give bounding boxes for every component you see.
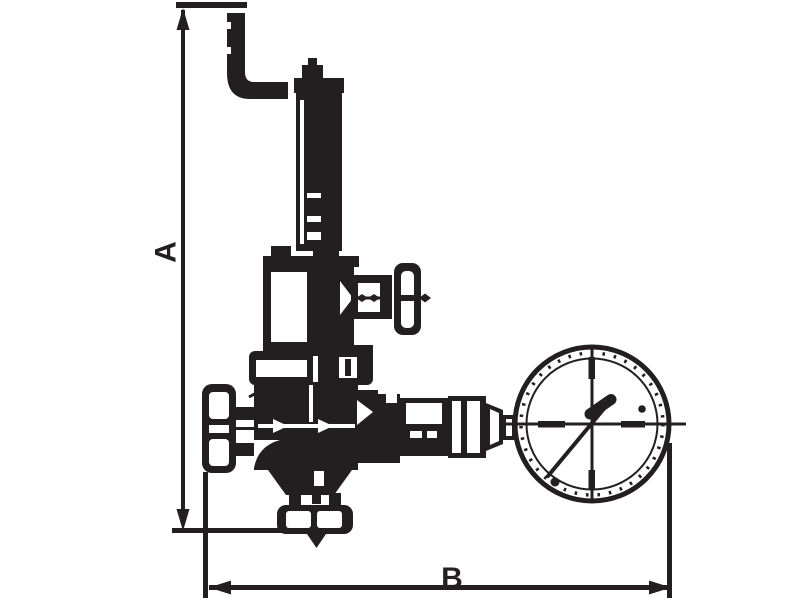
- pipe-section-mark: [427, 431, 437, 438]
- handwheel-hub-slot: [209, 425, 229, 433]
- dim-a-top-extension-line: [176, 2, 247, 8]
- housing-cap: [294, 78, 344, 93]
- dim-b-left-extension-line: [203, 472, 208, 598]
- spring-housing: [294, 58, 344, 251]
- flow-direction-arrow: [307, 534, 326, 548]
- connector-block: [378, 394, 400, 463]
- bottom-outlet: [277, 493, 353, 548]
- gauge-stop-pin: [551, 478, 560, 487]
- dim-a-arrow-down: [177, 509, 190, 531]
- body-taper: [268, 470, 352, 495]
- gauge-stem-face: [506, 419, 512, 436]
- valve-technical-drawing: A B: [0, 0, 800, 598]
- gauge-stop-pin: [638, 405, 646, 413]
- union-nut-flat: [467, 401, 480, 453]
- flange-notch-rib: [345, 359, 351, 376]
- drawing-canvas: A B: [0, 0, 800, 598]
- body-taper-slot: [314, 471, 324, 486]
- dimension-a-label: A: [150, 241, 183, 263]
- dimension-b-label: B: [441, 562, 463, 595]
- handwheel-slot-top: [209, 392, 229, 419]
- centerline-dash: [621, 421, 645, 428]
- adjuster-t-handle: [351, 263, 431, 335]
- bonnet-neck: [313, 244, 339, 258]
- dim-a-arrow-up: [177, 8, 190, 30]
- connector-notch: [386, 394, 397, 403]
- valve-body: [254, 385, 358, 495]
- bonnet-box-face: [271, 272, 307, 342]
- inlet-pipe: [227, 13, 288, 99]
- outlet-neck-left: [289, 493, 301, 507]
- outlet-nut-flat: [317, 511, 342, 528]
- flange-face: [256, 360, 307, 377]
- spring-gap-mark: [307, 232, 321, 240]
- body-centerline: [258, 424, 355, 428]
- body-seam: [309, 385, 313, 422]
- pipe-section-face: [406, 403, 442, 424]
- housing-nub: [302, 65, 323, 80]
- dim-b-right-extension-line: [667, 443, 672, 598]
- dim-b-line: [209, 585, 671, 590]
- outlet-nut-flat: [286, 511, 311, 528]
- union-nut-flat: [452, 401, 461, 453]
- pipe-thread-mark: [227, 22, 231, 29]
- pipe-section-mark: [410, 431, 422, 438]
- outlet-neck-right: [329, 493, 341, 507]
- gauge-connection: [356, 390, 515, 463]
- reducer-face: [490, 409, 499, 445]
- flange-gap: [313, 356, 318, 382]
- pressure-gauge: [506, 347, 686, 503]
- pipe-thread-mark: [227, 47, 231, 54]
- pipe-elbow: [227, 13, 288, 99]
- handwheel-axis-line: [236, 427, 256, 430]
- spring-gap-mark: [307, 193, 321, 198]
- handwheel-slot-bottom: [209, 439, 229, 466]
- bonnet-right-mass: [314, 265, 354, 348]
- centerline-dash: [589, 357, 596, 379]
- outlet-neck-stem: [312, 493, 321, 504]
- outlet-flange: [356, 390, 378, 463]
- column-highlight: [300, 100, 304, 244]
- dim-b-arrow-left: [209, 581, 231, 595]
- centerline-dash: [589, 470, 596, 490]
- centerline-dash: [538, 421, 565, 428]
- adjuster-knob-centermark: [399, 295, 416, 301]
- dim-a-line: [181, 10, 185, 524]
- spring-gap-mark: [307, 216, 321, 222]
